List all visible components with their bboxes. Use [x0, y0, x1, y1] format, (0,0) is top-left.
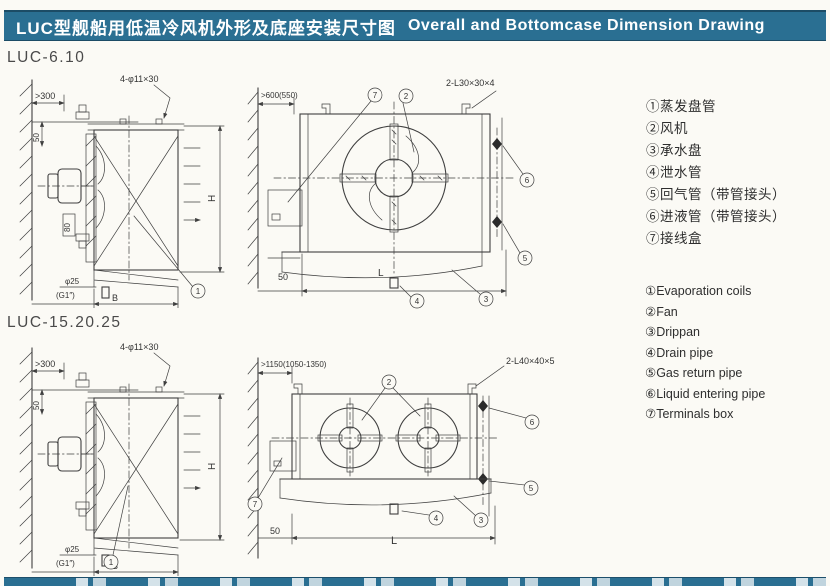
fig2-angle-steel-label: 2-L30×30×4 [446, 78, 495, 88]
bottom-banner-text-fragments [60, 578, 826, 586]
callout-3: 3 [452, 270, 493, 306]
wall-hatch [248, 358, 258, 558]
page-title-english: Overall and Bottomcase Dimension Drawing [408, 17, 765, 35]
fig2-bottom-dims: L 50 [258, 250, 506, 296]
fig4-angle-leader [476, 366, 504, 386]
callout-5: 5 [489, 481, 538, 495]
wall-hatch [20, 80, 32, 300]
fig-luc6-front-view: >600(550) 2-L30×30×4 [244, 74, 544, 310]
svg-text:4: 4 [415, 297, 420, 306]
svg-text:6: 6 [525, 176, 530, 185]
fig-luc15-side-view: >300 50 4-φ11×30 [8, 336, 240, 576]
fig4-angle-steel-label: 2-L40×40×5 [506, 356, 555, 366]
unit-body [274, 102, 516, 276]
fig-luc15-front-view: >1150(1050-1350) 2-L40×40×5 [244, 346, 594, 578]
bottom-banner-cropped [4, 577, 826, 586]
svg-text:5: 5 [523, 254, 528, 263]
svg-text:6: 6 [530, 418, 535, 427]
fig1-mounting-holes-label: 4-φ11×30 [120, 74, 158, 84]
legend-cn-item-1: ①蒸发盘管 [646, 95, 786, 117]
callout-1: 1 [134, 216, 205, 298]
fig4-bottom-dims: L 50 [258, 506, 495, 547]
legend-en-item-3: ③Drippan [645, 324, 765, 345]
fan-motor [48, 402, 105, 530]
drip-pan-drain: φ25 (G1″) B [32, 538, 178, 576]
drip-pan-drain [280, 479, 491, 514]
pipe-connections [478, 396, 489, 516]
fig2-dim-L: L [378, 268, 384, 279]
svg-text:1: 1 [109, 558, 114, 567]
legend-cn-item-4: ④泄水管 [646, 161, 786, 183]
fig4-wall-clearance-dim: >1150(1050-1350) [261, 360, 327, 369]
legend-english: ①Evaporation coils ②Fan ③Drippan ④Drain … [645, 283, 765, 427]
callout-1: 1 [104, 486, 128, 569]
fig1-drain-diameter: φ25 [65, 277, 80, 286]
callout-5: 5 [503, 224, 532, 265]
fig1-drain-thread: (G1″) [56, 291, 75, 300]
callout-6: 6 [489, 408, 539, 429]
fig1-wall-clearance-dim: >300 [35, 91, 55, 101]
svg-text:5: 5 [529, 484, 534, 493]
fig1-dimensions: >300 50 [32, 91, 138, 146]
fig4-dimensions: >1150(1050-1350) [258, 360, 327, 383]
coil-box [38, 116, 184, 280]
svg-text:7: 7 [253, 500, 258, 509]
legend-cn-item-3: ③承水盘 [646, 139, 786, 161]
fig-luc6-side-view: >300 50 4-φ11×30 80 [8, 68, 240, 308]
page-title-banner: LUC型舰船用低温冷风机外形及底座安装尺寸图 Overall and Botto… [4, 10, 826, 41]
svg-text:7: 7 [373, 91, 378, 100]
svg-text:2: 2 [387, 378, 392, 387]
legend-en-item-6: ⑥Liquid entering pipe [645, 386, 765, 407]
page-title-chinese: LUC型舰船用低温冷风机外形及底座安装尺寸图 [16, 14, 396, 39]
legend-en-item-2: ②Fan [645, 304, 765, 325]
svg-text:1: 1 [196, 287, 201, 296]
section-label-luc6-10: LUC-6.10 [7, 49, 85, 67]
fig2-dim-50: 50 [278, 272, 288, 282]
callout-7: 7 [248, 458, 282, 511]
unit-body [272, 384, 499, 479]
legend-cn-item-5: ⑤回气管（带管接头） [646, 183, 786, 205]
fig1-dim-50: 50 [32, 133, 41, 142]
legend-cn-item-2: ②风机 [646, 117, 786, 139]
legend-chinese: ①蒸发盘管 ②风机 ③承水盘 ④泄水管 ⑤回气管（带管接头） ⑥进液管（带管接头… [646, 95, 786, 249]
drip-pan-drain: φ25 (G1″) B [32, 270, 178, 308]
callout-4: 4 [402, 511, 443, 525]
terminal-box [268, 190, 302, 226]
pipe-connections [492, 118, 502, 250]
fig1-holes-leader [154, 85, 170, 118]
fig1-dim-B: B [112, 293, 118, 303]
fig1-dim-H: H [207, 195, 218, 202]
pipe-fittings [76, 373, 89, 516]
fig4-dim-50: 50 [270, 526, 280, 536]
fig1-dim-80: 80 [63, 223, 72, 232]
airflow-arrows [184, 416, 200, 488]
svg-text:4: 4 [434, 514, 439, 523]
fig3-dim-H: H [207, 463, 218, 470]
section-label-luc15-20-25: LUC-15.20.25 [7, 314, 122, 332]
fig3-drain-diameter: φ25 [65, 545, 80, 554]
pipe-fittings: 80 [63, 105, 89, 248]
wall-hatch [20, 348, 32, 568]
fig3-dim-50: 50 [32, 401, 41, 410]
drawing-page: LUC型舰船用低温冷风机外形及底座安装尺寸图 Overall and Botto… [0, 0, 830, 586]
legend-en-item-1: ①Evaporation coils [645, 283, 765, 304]
svg-text:3: 3 [479, 516, 484, 525]
callout-6: 6 [503, 146, 534, 187]
fig2-dimensions: >600(550) [258, 91, 298, 114]
airflow-arrows [184, 148, 200, 220]
legend-cn-item-7: ⑦接线盒 [646, 227, 786, 249]
fig2-wall-clearance-dim: >600(550) [261, 91, 298, 100]
legend-en-item-5: ⑤Gas return pipe [645, 365, 765, 386]
legend-en-item-7: ⑦Terminals box [645, 406, 765, 427]
callout-7: 7 [288, 88, 382, 202]
fig3-holes-leader [154, 353, 170, 386]
fig3-dimensions: >300 50 [32, 359, 138, 414]
svg-text:3: 3 [484, 295, 489, 304]
fig3-wall-clearance-dim: >300 [35, 359, 55, 369]
fig4-dim-L: L [391, 535, 397, 547]
fig3-drain-thread: (G1″) [56, 559, 75, 568]
callout-2: 2 [399, 89, 414, 152]
wall-hatch [248, 88, 258, 288]
fig3-mounting-holes-label: 4-φ11×30 [120, 342, 158, 352]
coil-box [38, 384, 184, 548]
legend-cn-item-6: ⑥进液管（带管接头） [646, 205, 786, 227]
fig2-angle-leader [472, 91, 496, 108]
fan-motor [48, 134, 105, 262]
svg-text:2: 2 [404, 92, 409, 101]
callout-4: 4 [400, 286, 424, 308]
legend-en-item-4: ④Drain pipe [645, 345, 765, 366]
